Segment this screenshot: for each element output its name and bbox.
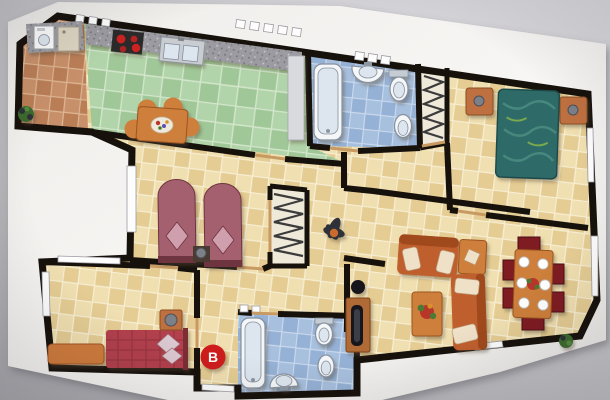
floor-plan-svg: B (0, 0, 610, 400)
floor-plan-photo: B (0, 0, 610, 400)
photo-vignette (0, 0, 610, 400)
